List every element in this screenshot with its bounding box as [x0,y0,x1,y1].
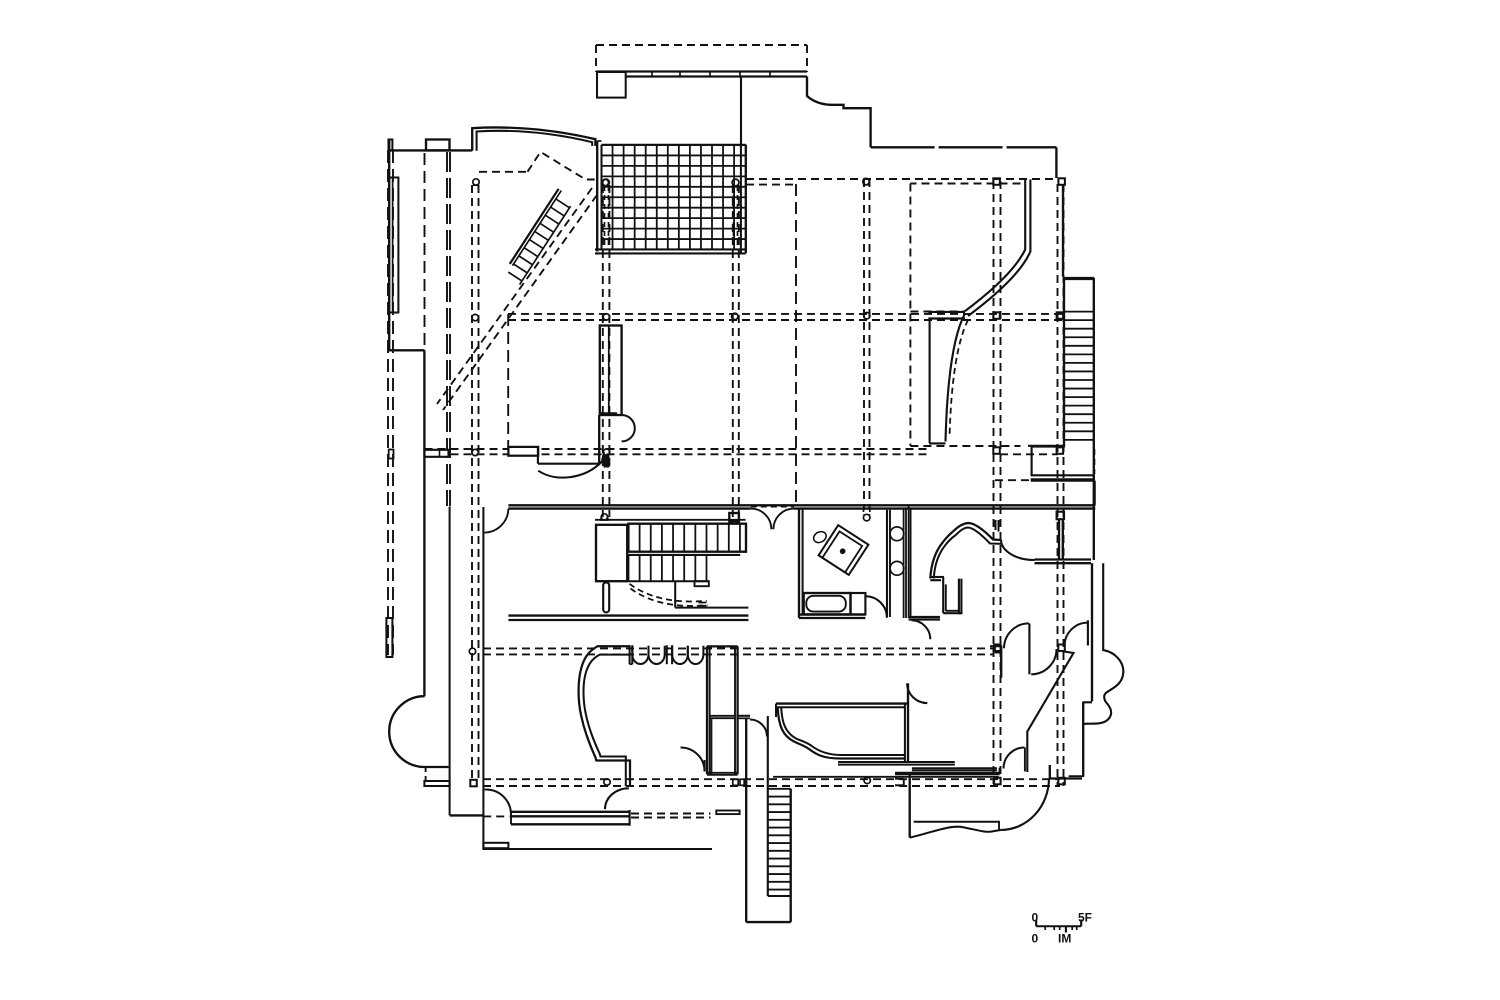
svg-text:0: 0 [1032,932,1039,946]
svg-text:0: 0 [1032,911,1039,925]
svg-text:IM: IM [1058,932,1071,946]
svg-text:5F: 5F [1078,911,1092,925]
